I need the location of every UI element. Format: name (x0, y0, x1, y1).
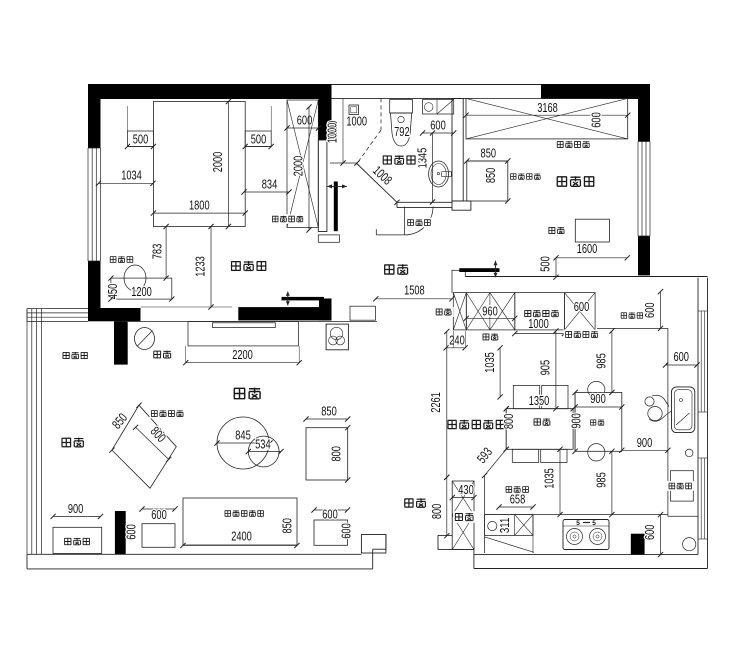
svg-text:1035: 1035 (542, 468, 557, 489)
svg-text:430: 430 (458, 482, 474, 497)
svg-text:2000: 2000 (210, 152, 225, 173)
svg-text:600: 600 (322, 507, 338, 522)
svg-text:500: 500 (133, 132, 149, 147)
svg-text:783: 783 (150, 244, 165, 260)
svg-text:1233: 1233 (193, 256, 208, 277)
svg-text:600: 600 (430, 118, 446, 133)
svg-text:5: 5 (576, 520, 580, 527)
svg-text:600: 600 (574, 299, 590, 314)
svg-text:5: 5 (592, 520, 596, 527)
svg-text:600: 600 (339, 523, 354, 539)
svg-text:658: 658 (510, 492, 526, 507)
svg-text:534: 534 (255, 436, 271, 451)
svg-text:850: 850 (321, 404, 337, 419)
svg-text:600: 600 (124, 524, 139, 540)
svg-text:900: 900 (590, 391, 606, 406)
svg-text:834: 834 (262, 177, 278, 192)
svg-text:800: 800 (329, 446, 344, 462)
svg-text:850: 850 (483, 168, 498, 184)
svg-text:1800: 1800 (189, 197, 210, 212)
svg-text:900: 900 (68, 501, 84, 516)
svg-text:1600: 1600 (577, 241, 598, 256)
svg-text:1000: 1000 (325, 123, 340, 144)
svg-text:985: 985 (594, 472, 609, 488)
svg-text:600: 600 (673, 349, 689, 364)
svg-text:1034: 1034 (121, 168, 142, 183)
svg-text:985: 985 (593, 353, 608, 369)
svg-text:1350: 1350 (529, 393, 550, 408)
svg-text:2000: 2000 (291, 156, 306, 177)
svg-text:1035: 1035 (482, 352, 497, 373)
svg-text:1000: 1000 (346, 114, 367, 129)
svg-text:792: 792 (394, 124, 410, 139)
svg-text:1200: 1200 (131, 284, 152, 299)
svg-text:600: 600 (589, 112, 604, 128)
svg-text:240: 240 (449, 332, 465, 347)
svg-text:3168: 3168 (537, 100, 558, 115)
svg-text:905: 905 (537, 360, 552, 376)
svg-text:600: 600 (297, 113, 313, 128)
svg-text:2261: 2261 (428, 392, 443, 413)
svg-text:850: 850 (280, 518, 295, 534)
svg-text:600: 600 (642, 302, 657, 318)
svg-text:2200: 2200 (232, 347, 253, 362)
svg-text:1000: 1000 (528, 316, 549, 331)
svg-text:850: 850 (481, 145, 497, 160)
svg-text:900: 900 (569, 413, 584, 429)
svg-text:800: 800 (429, 504, 444, 520)
svg-text:800: 800 (501, 414, 516, 430)
svg-text:311: 311 (497, 518, 512, 534)
svg-text:960: 960 (482, 304, 498, 319)
svg-text:900: 900 (637, 435, 653, 450)
svg-text:1508: 1508 (404, 283, 425, 298)
svg-text:500: 500 (538, 256, 553, 272)
svg-text:500: 500 (251, 132, 267, 147)
svg-text:600: 600 (151, 507, 167, 522)
svg-text:600: 600 (642, 525, 657, 541)
svg-text:2400: 2400 (231, 529, 252, 544)
svg-text:845: 845 (235, 428, 251, 443)
